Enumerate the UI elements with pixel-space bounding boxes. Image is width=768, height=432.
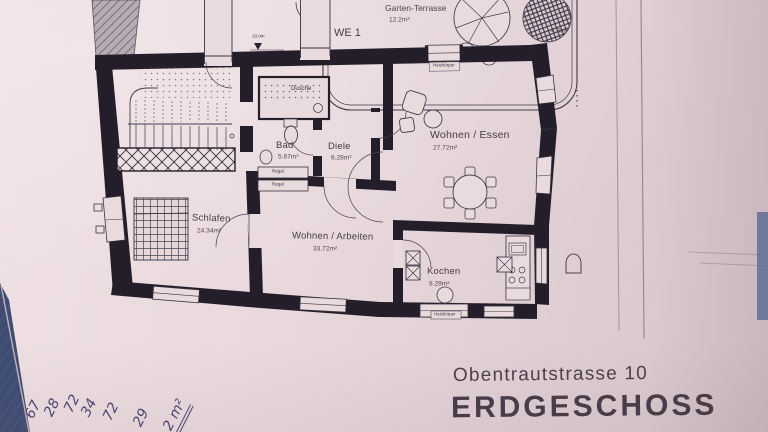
window-bottom-2 bbox=[300, 297, 347, 312]
radiator-label-bottom: Heizkörper bbox=[434, 312, 456, 317]
bell-symbol bbox=[566, 254, 581, 273]
room-area-wohnen-essen: 27.72m² bbox=[433, 144, 457, 151]
room-label-diele: Diele bbox=[328, 142, 351, 152]
basin-circle bbox=[437, 287, 453, 303]
photo-shading-bottom bbox=[0, 342, 768, 432]
window-right-2 bbox=[536, 156, 552, 194]
elevation-marker-icon bbox=[254, 43, 262, 50]
shower-room bbox=[259, 77, 329, 119]
room-area-wohnen-arbeiten: 33.72m² bbox=[313, 245, 337, 252]
window-bottom-4 bbox=[484, 306, 514, 317]
window-right-3 bbox=[536, 248, 547, 284]
terrace-steps-opening bbox=[300, 0, 330, 60]
room-label-dusche: Dusche bbox=[291, 85, 311, 91]
room-label-bad: Bad bbox=[276, 141, 294, 151]
room-label-wohnen-essen: Wohnen / Essen bbox=[430, 130, 510, 141]
unit-label: WE 1 bbox=[334, 28, 361, 39]
terrace-label: Garten-Terrasse bbox=[385, 4, 446, 13]
window-left bbox=[94, 196, 125, 242]
elevation-label: ±0.0m bbox=[252, 34, 264, 39]
dining-table-set bbox=[444, 167, 496, 219]
room-area-diele: 6.28m² bbox=[331, 154, 352, 161]
room-area-bad: 5.67m² bbox=[278, 153, 299, 160]
window-right-1 bbox=[536, 75, 556, 104]
bed bbox=[134, 198, 188, 260]
room-label-schlafen: Schlafen bbox=[192, 213, 231, 224]
room-area-schlafen: 24.34m² bbox=[197, 227, 221, 234]
shelf-label-1: Regal bbox=[272, 169, 284, 174]
radiator-label-top: Heizkörper bbox=[433, 63, 455, 68]
cross-hatched-wall bbox=[117, 148, 235, 171]
shelf-label-2: Regal bbox=[272, 182, 284, 187]
room-label-wohnen-arbeiten: Wohnen / Arbeiten bbox=[292, 231, 374, 242]
photo-of-floorplan: Schlafen 24.34m² Bad 5.67m² Diele 6.28m²… bbox=[0, 0, 768, 432]
room-label-kochen: Kochen bbox=[427, 267, 460, 277]
tree-area-label: 4.3m² bbox=[551, 27, 568, 34]
terrace-area: 12.2m² bbox=[389, 16, 410, 23]
lounge-chairs bbox=[399, 89, 442, 133]
room-area-kochen: 8.29m² bbox=[429, 280, 450, 287]
staircase bbox=[128, 66, 234, 150]
neighbor-wall-hatch bbox=[92, 0, 140, 56]
